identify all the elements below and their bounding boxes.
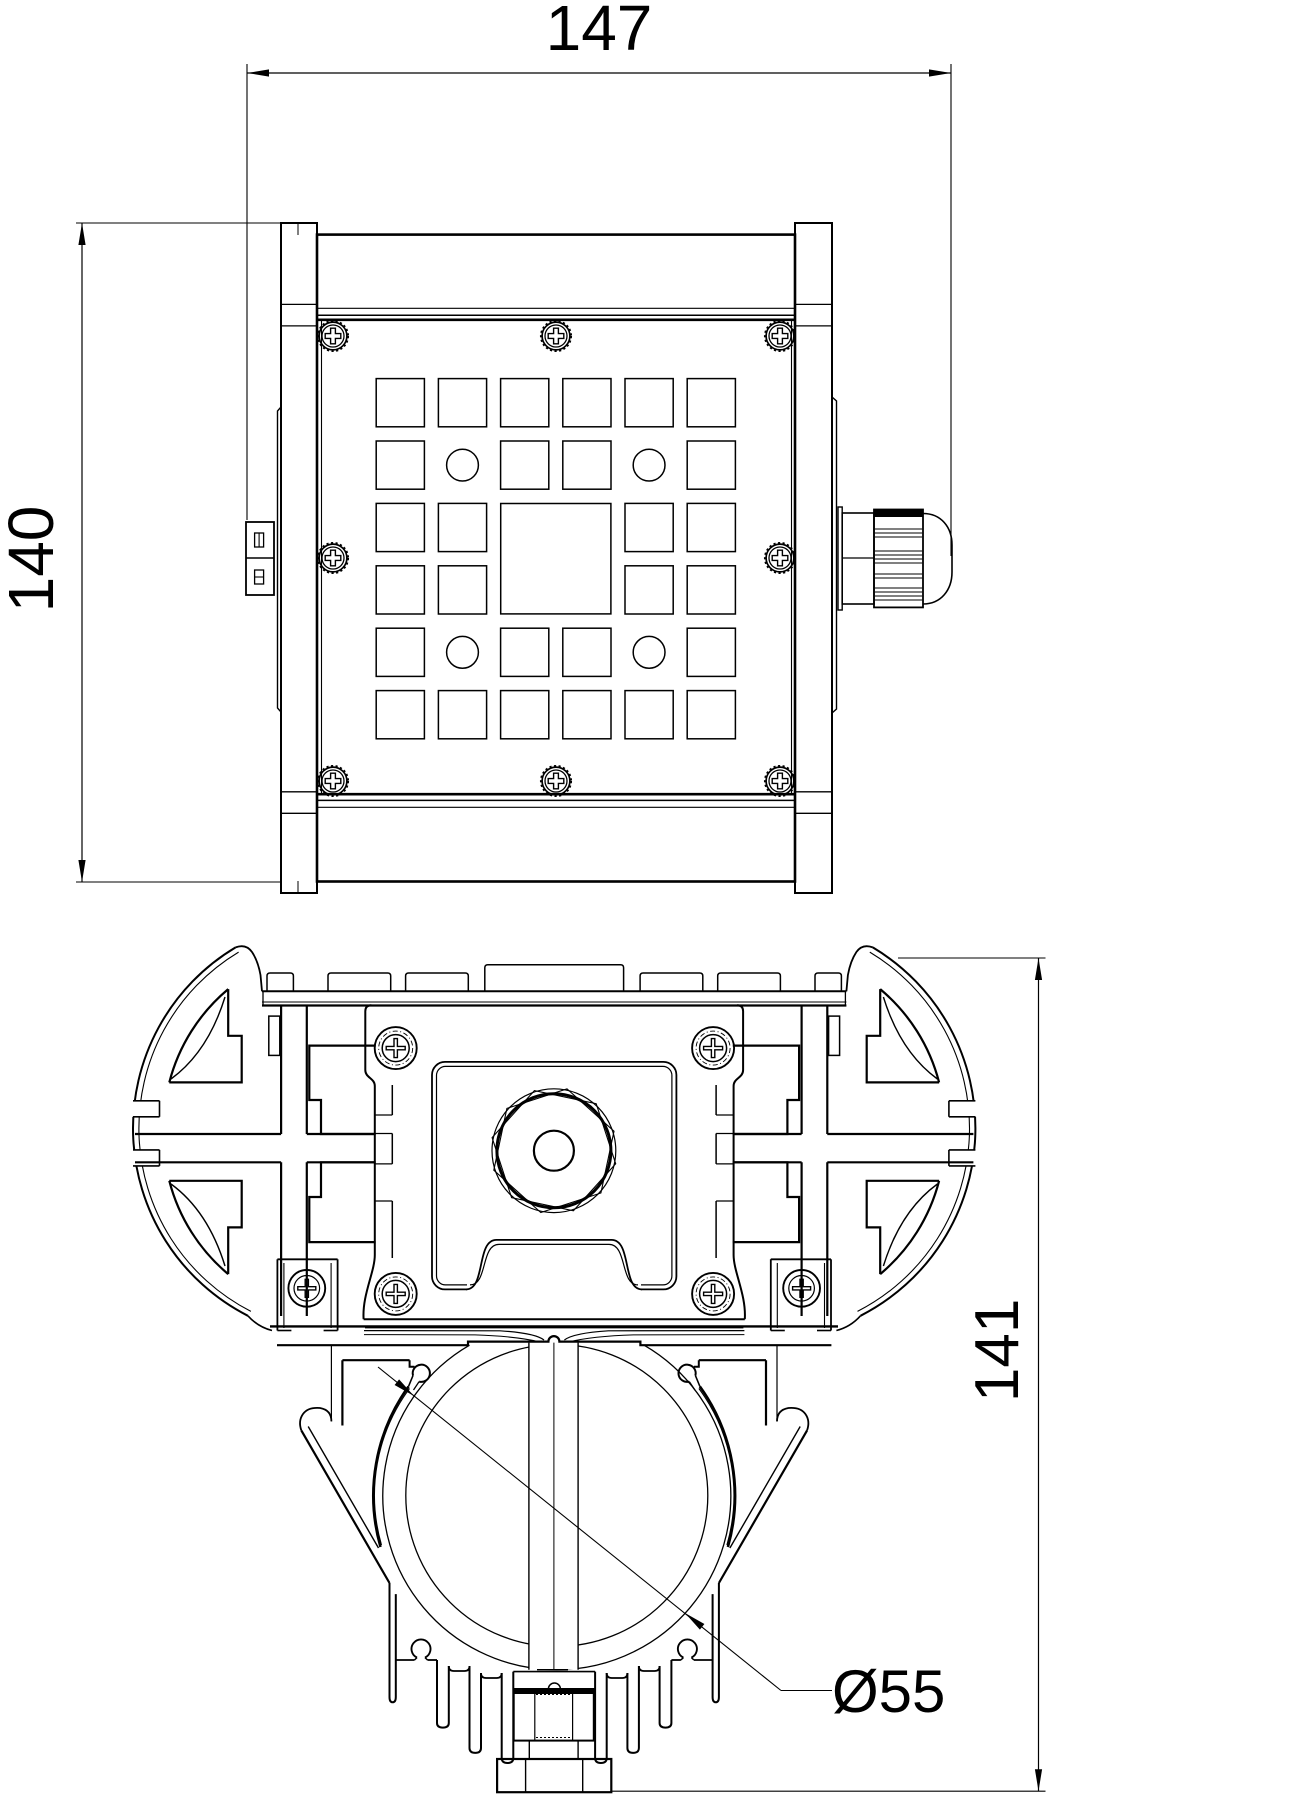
svg-text:140: 140 (0, 506, 67, 613)
svg-text:141: 141 (963, 1299, 1032, 1402)
svg-text:147: 147 (546, 0, 653, 64)
svg-text:Ø55: Ø55 (832, 1658, 945, 1725)
